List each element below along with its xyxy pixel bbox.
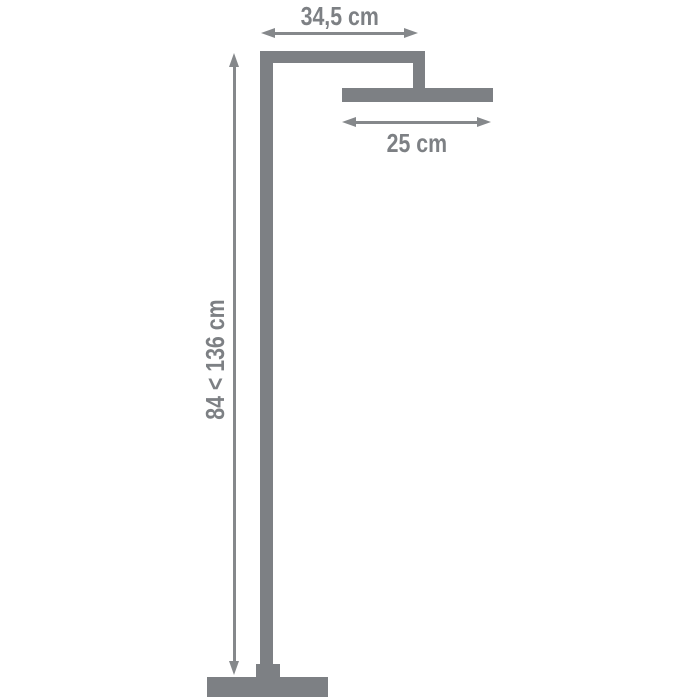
base-connector-shape	[256, 664, 280, 678]
shower-head-shape	[342, 88, 493, 102]
head-width-label-text: 25 cm	[387, 128, 447, 159]
height-arrow-line	[233, 64, 236, 664]
dimension-diagram-canvas: 34,5 cm 25 cm 84 < 136 cm	[0, 0, 700, 700]
shower-pole-shape	[260, 51, 273, 665]
head-width-right-arrowhead-icon	[477, 117, 491, 127]
height-range-label-text: 84 < 136 cm	[200, 300, 231, 420]
top-width-label-text: 34,5 cm	[301, 1, 379, 32]
height-top-arrowhead-icon	[229, 53, 239, 67]
base-plate-shape	[207, 677, 328, 697]
shower-arm-shape	[260, 51, 425, 63]
height-bottom-arrowhead-icon	[229, 661, 239, 675]
top-width-arrow-line	[273, 32, 406, 35]
head-width-left-arrowhead-icon	[342, 117, 356, 127]
top-width-label: 34,5 cm	[250, 1, 430, 32]
head-width-arrow-line	[354, 121, 479, 124]
head-width-label: 25 cm	[342, 128, 492, 159]
shower-head-neck-shape	[413, 63, 425, 89]
